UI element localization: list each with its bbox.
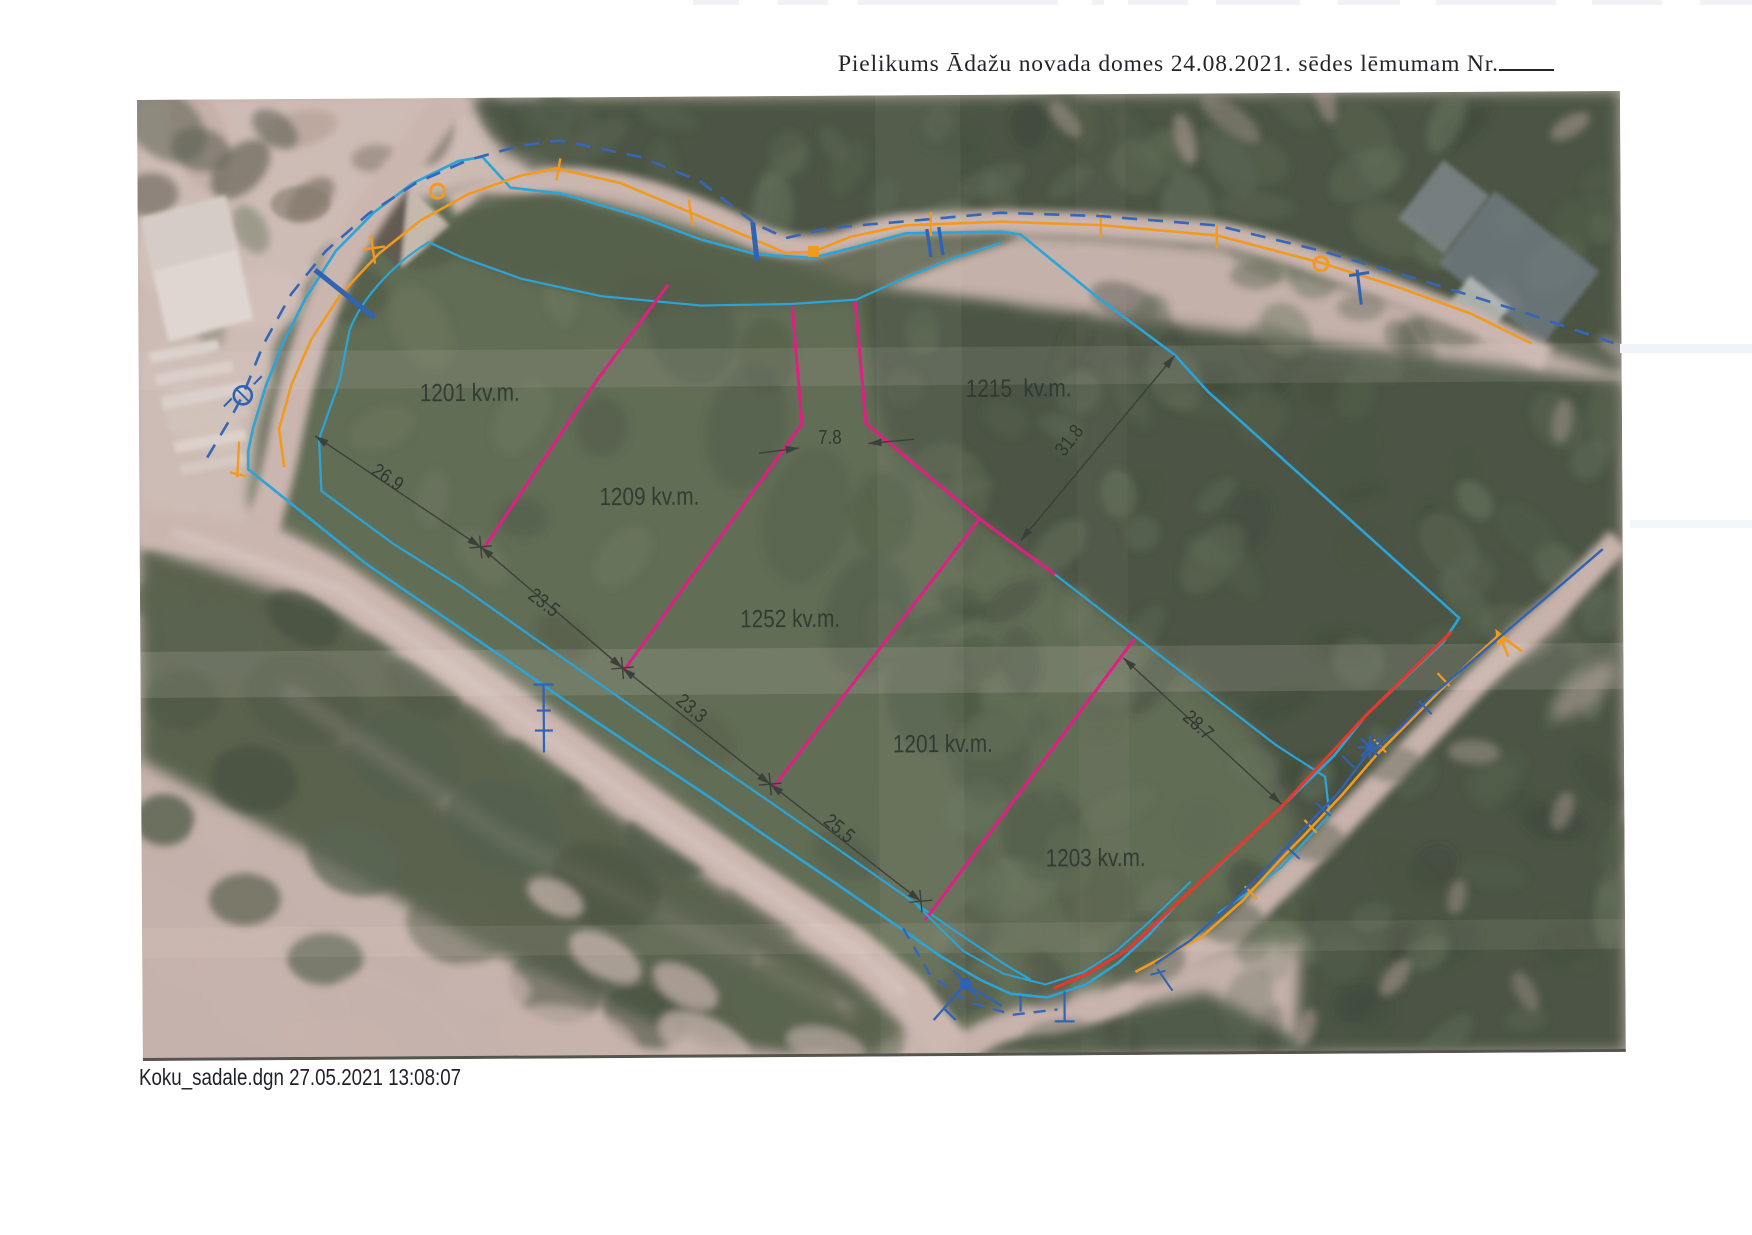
svg-text:1215 kv.m.: 1215 kv.m. <box>966 373 1072 402</box>
svg-text:1201 kv.m.: 1201 kv.m. <box>420 378 520 407</box>
svg-text:1203 kv.m.: 1203 kv.m. <box>1046 843 1146 872</box>
svg-text:1209 kv.m.: 1209 kv.m. <box>599 482 699 511</box>
svg-text:1252 kv.m.: 1252 kv.m. <box>740 604 840 633</box>
svg-text:7.8: 7.8 <box>818 425 842 448</box>
svg-text:1201 kv.m.: 1201 kv.m. <box>893 729 993 758</box>
